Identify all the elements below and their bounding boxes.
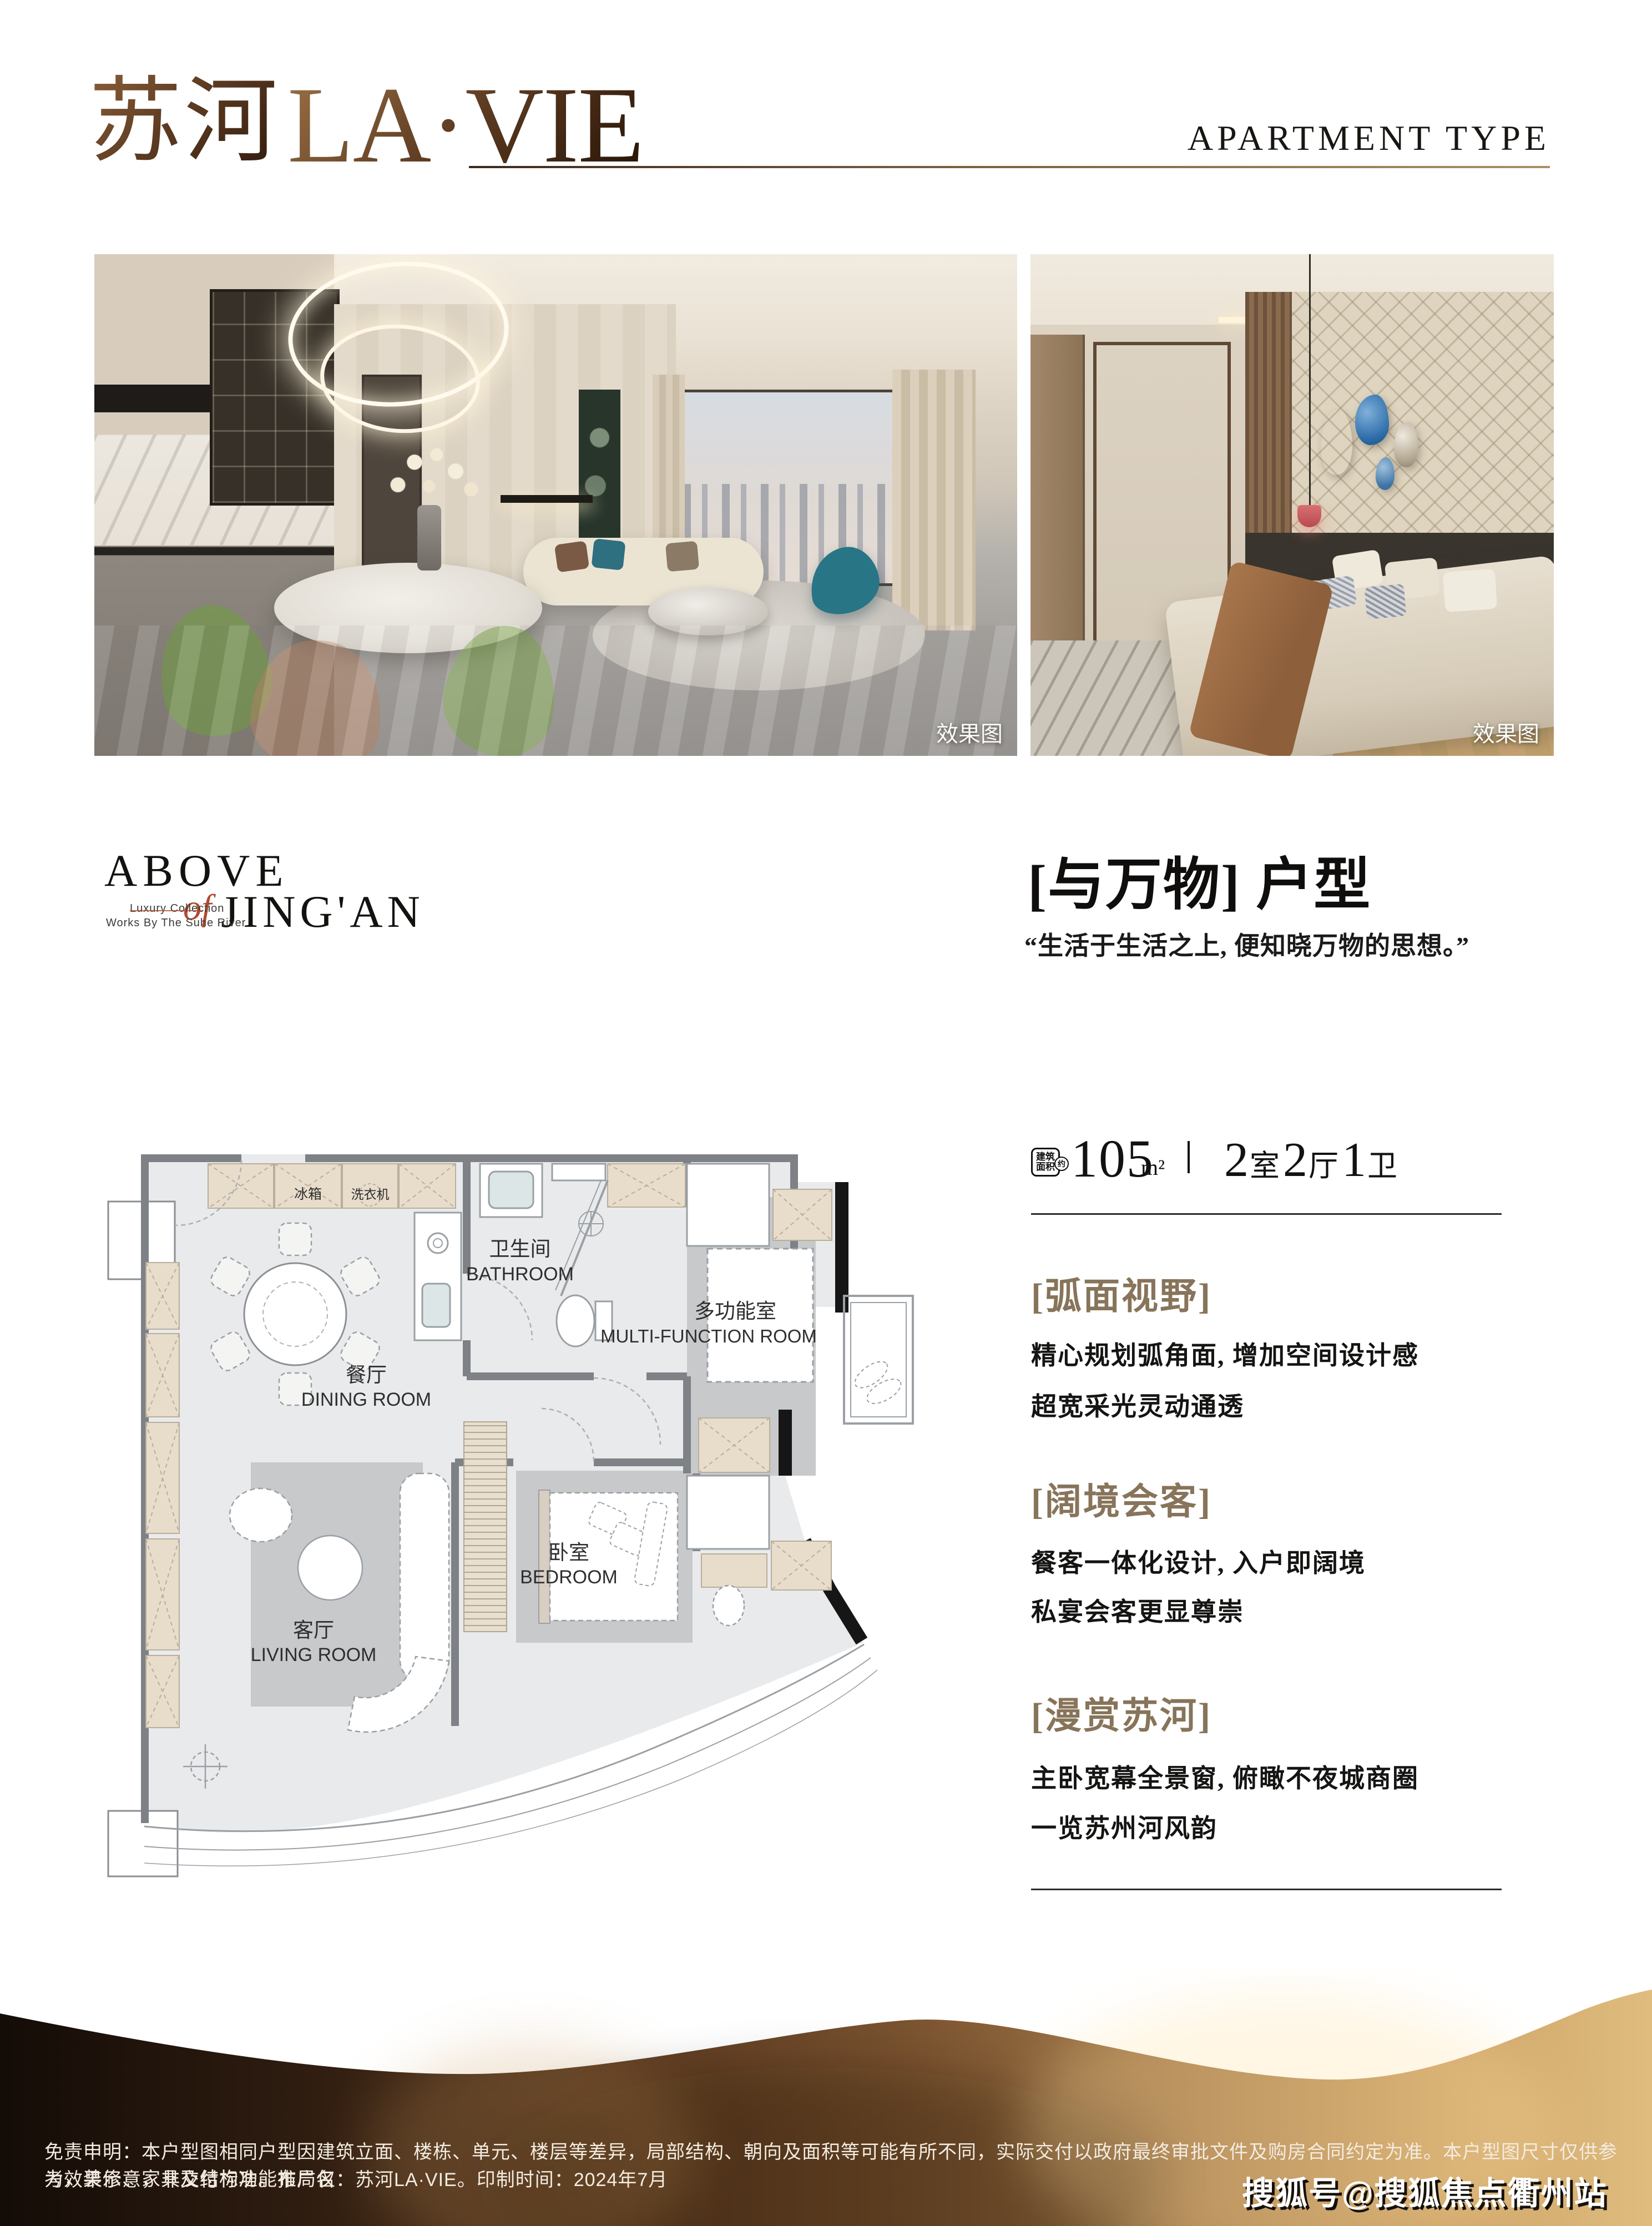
multi-label-en: MULTI-FUNCTION ROOM	[600, 1326, 817, 1346]
logo-cn-text: 苏河	[89, 71, 280, 174]
living-label-en: LIVING ROOM	[251, 1644, 377, 1665]
area-unit: m²	[1141, 1154, 1165, 1180]
bathroom-label-en: BATHROOM	[466, 1264, 574, 1285]
disclaimer-line-2: 为效果示意，非交付标准。推广名：苏河LA·VIE。印制时间：2024年7月	[44, 2164, 668, 2192]
living-room-render-photo: 效果图	[94, 254, 1017, 756]
unit-type-title: [与万物] 户型	[1028, 839, 1371, 921]
curtain-right	[892, 370, 976, 630]
bedroom-label-cn: 卧室	[548, 1541, 589, 1564]
section-divider	[1031, 1213, 1502, 1215]
sohu-watermark: 搜狐号@搜狐焦点衢州站	[1242, 2167, 1608, 2214]
section-divider	[1031, 1889, 1502, 1890]
vertical-divider	[1188, 1141, 1190, 1173]
section-2-line-2: 私宴会客更显尊崇	[1031, 1592, 1244, 1628]
bedroom-render-photo: 效果图	[1030, 254, 1554, 756]
balcony	[844, 1296, 913, 1424]
section-title-1: [弧面视野]	[1031, 1266, 1212, 1320]
rose-bouquet	[376, 440, 487, 515]
page-title: APARTMENT TYPE	[1188, 118, 1550, 159]
brand-jingan-text: JING'AN	[221, 886, 425, 938]
bedroom-label-en: BEDROOM	[520, 1567, 618, 1588]
bed-pillow	[1364, 584, 1406, 619]
render-disclaimer-label: 效果图	[1473, 716, 1539, 748]
room-count-number: 2	[1283, 1132, 1307, 1188]
dining-label-en: DINING ROOM	[301, 1389, 431, 1410]
blue-wall-art	[1376, 457, 1395, 490]
wood-slats	[1245, 292, 1292, 573]
sofa-pillow	[591, 538, 625, 571]
floor-plan: 冰箱 洗衣机 卫生间 BATHROOM 多功能室 MULTI-FUNCTION …	[92, 1129, 974, 1879]
room-count-label: 卫	[1367, 1141, 1397, 1185]
logo-en-text: LA·VIE	[287, 71, 643, 180]
wardrobe	[687, 1476, 769, 1549]
header-divider	[469, 166, 1550, 168]
brand-tagline-1: Luxury Collection	[130, 902, 224, 915]
wood-wardrobe	[1030, 335, 1085, 666]
section-title-2: [阔境会客]	[1031, 1472, 1212, 1525]
area-summary-row: 建筑 面积 约 105 m² 2 室 2 厅 1 卫	[1031, 1132, 1530, 1182]
bathroom-label-cn: 卫生间	[489, 1238, 551, 1260]
multi-label-cn: 多功能室	[694, 1300, 776, 1323]
room-count: 2 室 2 厅 1 卫	[1224, 1132, 1401, 1188]
fridge-label: 冰箱	[294, 1187, 322, 1202]
section-3-line-2: 一览苏州河风韵	[1031, 1808, 1217, 1845]
kitchen-counter	[415, 1213, 461, 1340]
wall-light	[501, 495, 593, 503]
pendant-cord	[1309, 254, 1311, 515]
badge-line2: 面积	[1036, 1162, 1055, 1172]
section-3-line-1: 主卧宽幕全景窗, 俯瞰不夜城商圈	[1031, 1758, 1419, 1795]
room-count-label: 室	[1250, 1141, 1280, 1185]
dining-label-cn: 餐厅	[346, 1364, 387, 1386]
closet	[464, 1422, 507, 1632]
section-title-3: [漫赏苏河]	[1031, 1686, 1212, 1739]
section-1-line-1: 精心规划弧角面, 增加空间设计感	[1031, 1335, 1419, 1372]
brochure-page: 苏河 LA·VIE APARTMENT TYPE	[0, 0, 1652, 2226]
render-disclaimer-label: 效果图	[936, 716, 1003, 748]
bed-pillow	[1443, 568, 1498, 612]
room-count-number: 1	[1342, 1132, 1366, 1188]
approx-circle-badge: 约	[1054, 1157, 1069, 1171]
living-label-cn: 客厅	[293, 1619, 334, 1642]
room-count-number: 2	[1224, 1132, 1249, 1188]
marble-floor	[94, 625, 1017, 756]
metallic-wall-art	[1394, 422, 1418, 467]
unit-quote: “生活于生活之上, 便知晓万物的思想。”	[1024, 926, 1469, 962]
wardrobe	[687, 1164, 769, 1246]
project-logo: 苏河 LA·VIE	[89, 71, 643, 180]
sofa-pillow	[554, 541, 589, 572]
brand-tagline-2: Works By The Suhe River	[106, 917, 246, 930]
brand-red-stroke	[130, 910, 202, 911]
sofa-pillow	[665, 541, 699, 572]
range-hood	[94, 385, 210, 412]
section-1-line-2: 超宽采光灵动通透	[1031, 1386, 1244, 1423]
section-2-line-1: 餐客一体化设计, 入户即阔境	[1031, 1543, 1366, 1579]
badge-line1: 建筑	[1036, 1152, 1055, 1162]
room-count-label: 厅	[1309, 1141, 1338, 1185]
green-wall-art	[579, 390, 620, 550]
washer-label: 洗衣机	[351, 1187, 390, 1202]
